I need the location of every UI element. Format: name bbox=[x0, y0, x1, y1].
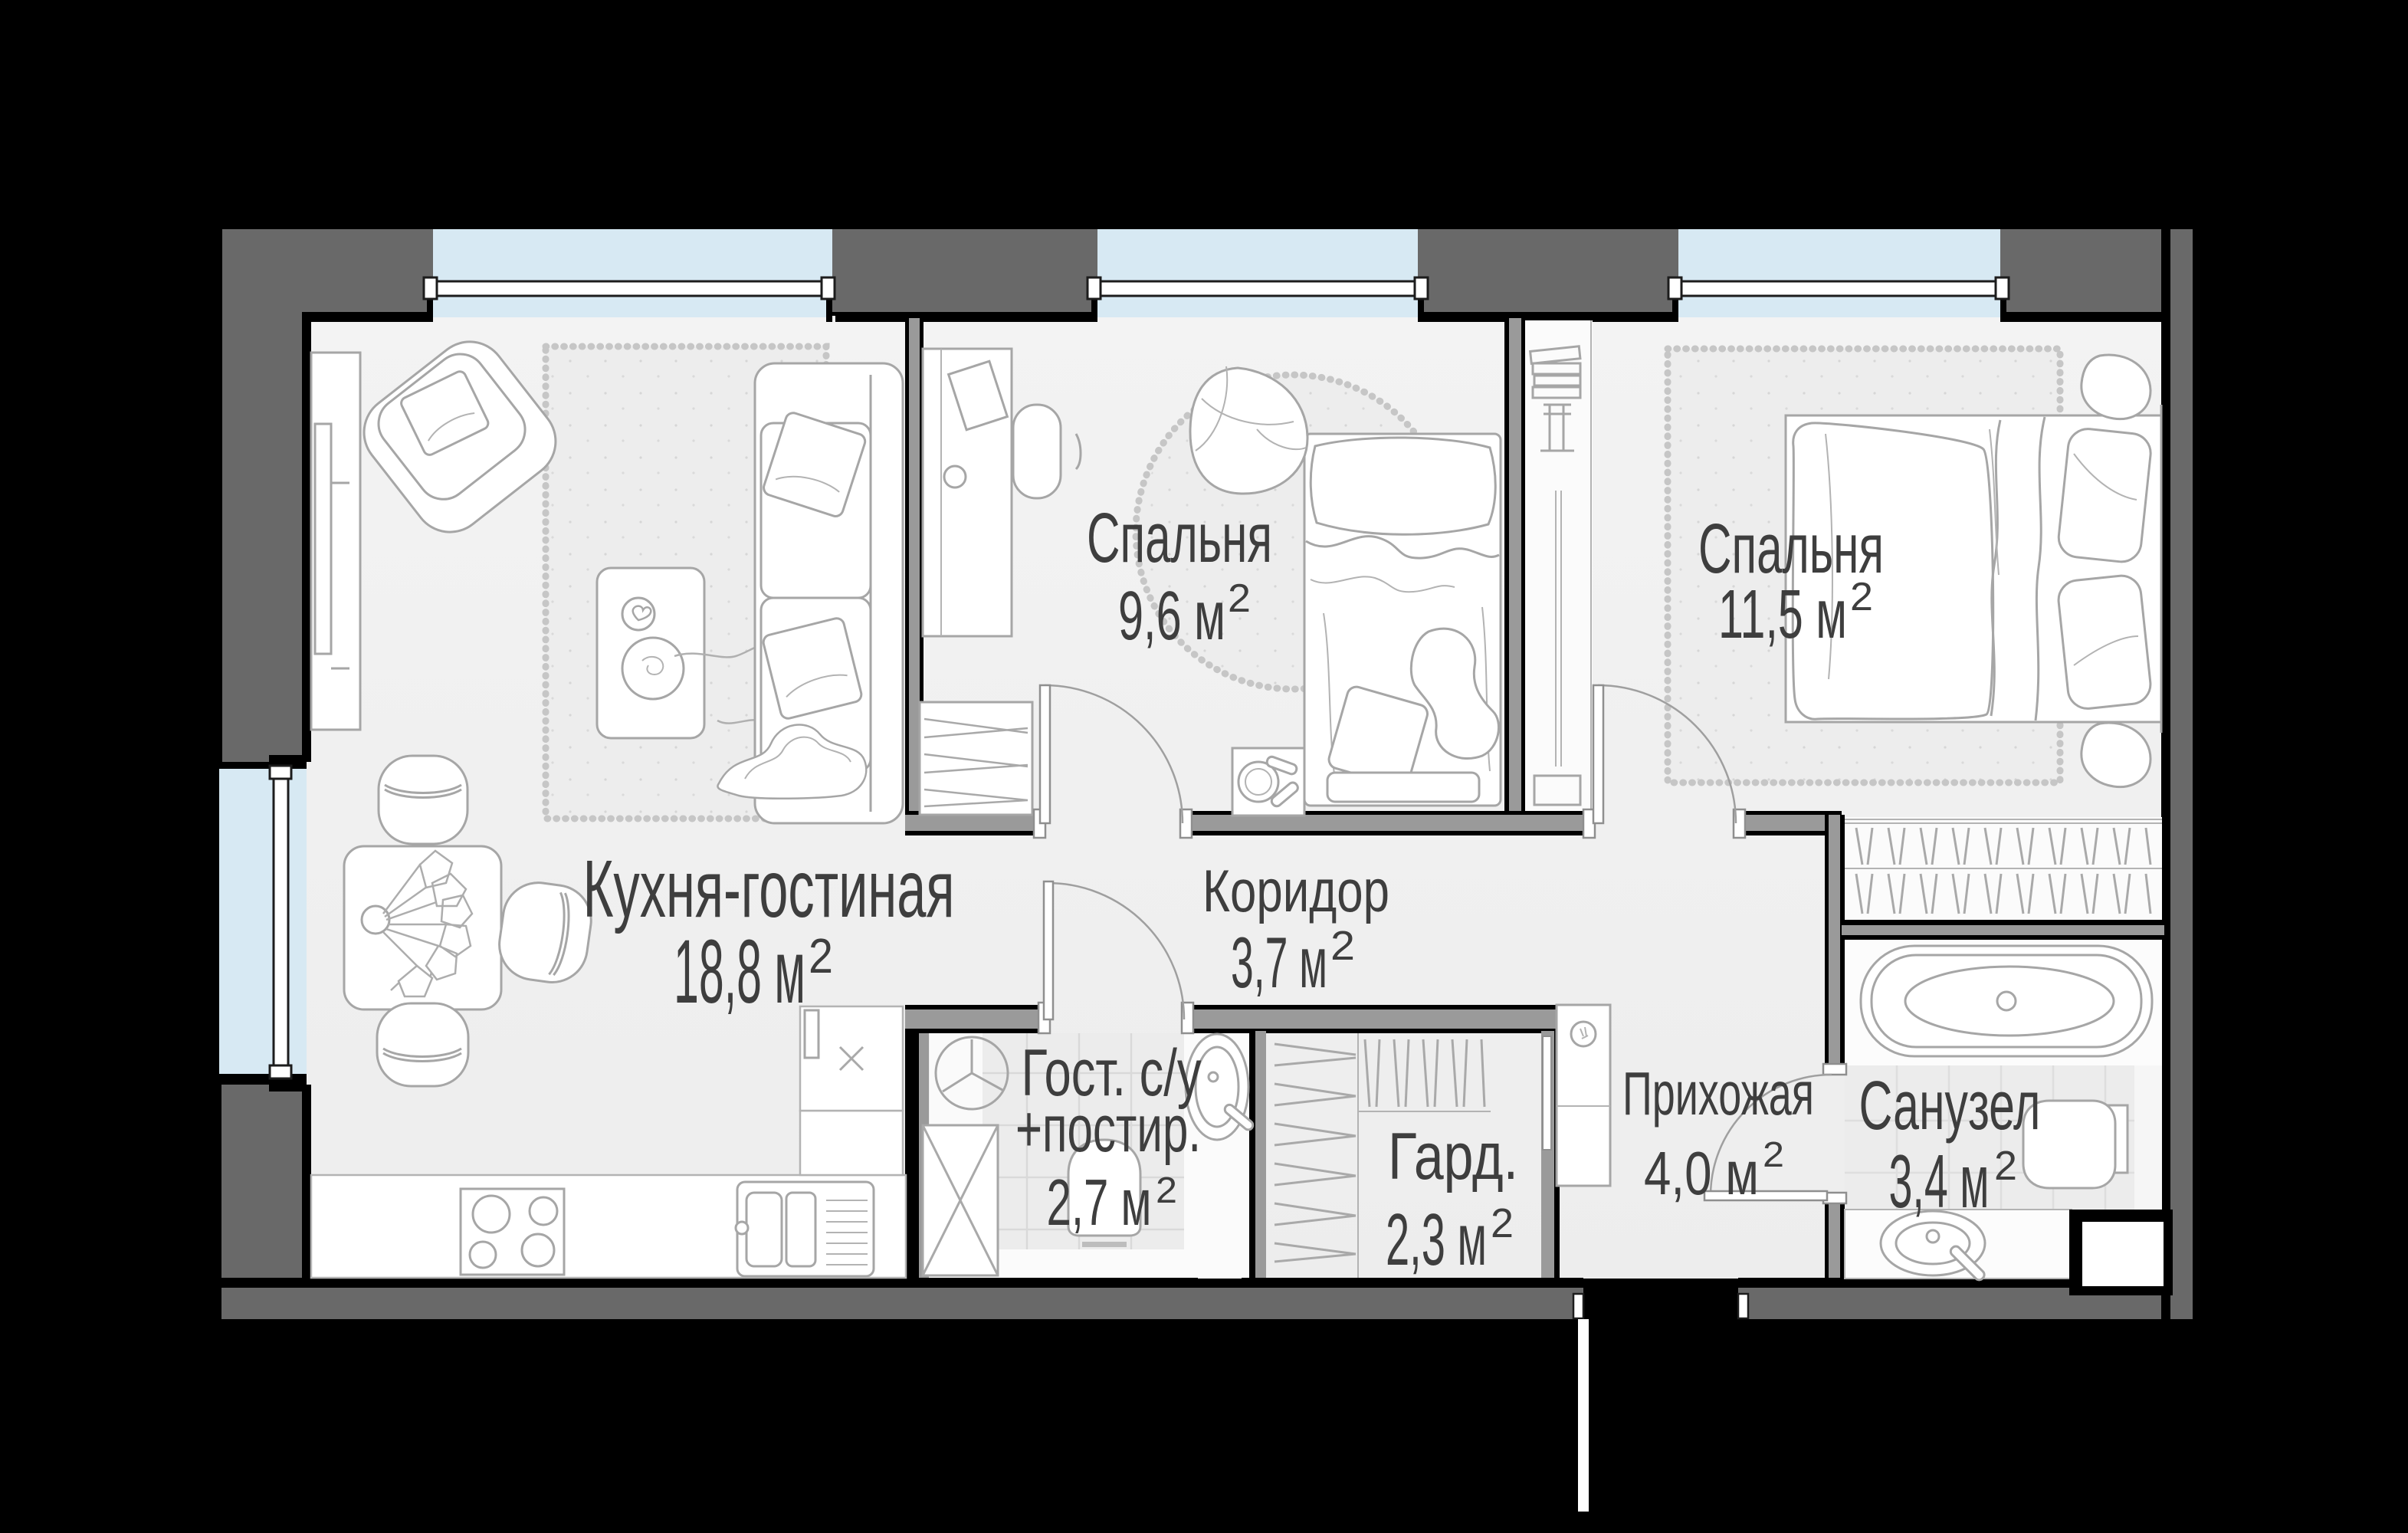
svg-text:Прихожая: Прихожая bbox=[1622, 1059, 1814, 1128]
svg-text:2: 2 bbox=[1994, 1143, 2017, 1189]
svg-text:Гард.: Гард. bbox=[1388, 1120, 1518, 1193]
svg-text:2: 2 bbox=[1156, 1170, 1177, 1211]
svg-text:2,3 м: 2,3 м bbox=[1386, 1199, 1487, 1281]
svg-text:Спальня: Спальня bbox=[1087, 499, 1272, 577]
svg-text:3,4 м: 3,4 м bbox=[1889, 1139, 1990, 1223]
svg-text:2: 2 bbox=[1330, 923, 1355, 969]
svg-text:Коридор: Коридор bbox=[1202, 857, 1389, 924]
svg-text:2: 2 bbox=[1763, 1134, 1784, 1174]
svg-text:2: 2 bbox=[1491, 1200, 1514, 1246]
svg-text:2: 2 bbox=[1228, 576, 1251, 621]
svg-text:2: 2 bbox=[1850, 575, 1873, 619]
svg-text:3,7 м: 3,7 м bbox=[1231, 922, 1327, 1003]
svg-text:18,8 м: 18,8 м bbox=[674, 921, 805, 1023]
svg-text:2: 2 bbox=[809, 928, 833, 983]
svg-text:9,6 м: 9,6 м bbox=[1118, 578, 1225, 655]
svg-text:Санузел: Санузел bbox=[1859, 1068, 2041, 1144]
svg-text:11,5 м: 11,5 м bbox=[1718, 576, 1847, 653]
svg-text:2,7 м: 2,7 м bbox=[1047, 1167, 1152, 1239]
svg-text:4,0 м: 4,0 м bbox=[1644, 1139, 1759, 1207]
svg-text:+постир.: +постир. bbox=[1015, 1092, 1201, 1166]
